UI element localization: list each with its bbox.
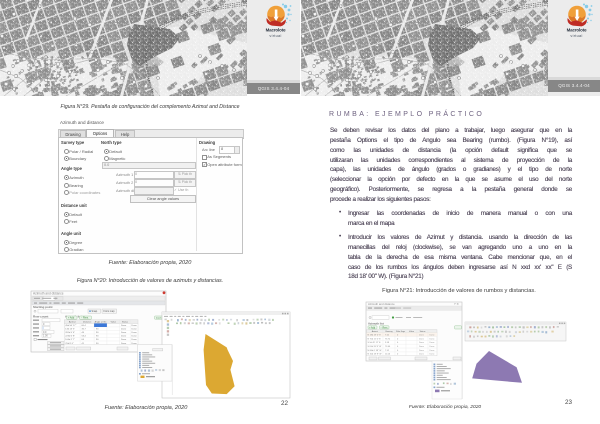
svg-text:Done: Done [132, 339, 138, 341]
svg-text:Distance: Distance [83, 321, 92, 324]
svg-text:Done: Done [132, 325, 138, 327]
svg-text:Done: Done [430, 350, 436, 352]
svg-text:Snap.: Snap. [92, 310, 99, 313]
svg-text:Done: Done [121, 336, 127, 338]
svg-text:Done: Done [121, 329, 127, 331]
svg-text:Azimuth and distance: Azimuth and distance [33, 292, 64, 296]
svg-text:Azimuth and distance: Azimuth and distance [368, 302, 395, 306]
svg-text:11.06: 11.06 [385, 354, 391, 356]
svg-text:+ Add: + Add [68, 317, 75, 320]
svg-text:N 10d 18' 8" W: N 10d 18' 8" W [368, 354, 382, 356]
svg-text:Done: Done [430, 334, 436, 336]
svg-text:N 75d 11' 6" E: N 75d 11' 6" E [368, 338, 382, 340]
svg-text:Done: Done [430, 342, 436, 344]
svg-text:Done: Done [132, 329, 138, 331]
svg-text:1.00: 1.00 [43, 335, 48, 338]
svg-text:Done: Done [430, 354, 436, 356]
svg-text:13d 13' 5": 13d 13' 5" [65, 329, 75, 331]
svg-text:Macrolote: Macrolote [567, 28, 587, 33]
svg-text:Done: Done [419, 334, 425, 336]
svg-text:Done: Done [132, 332, 138, 334]
svg-text:45d 56' 17": 45d 56' 17" [65, 325, 76, 327]
svg-text:Done: Done [121, 343, 127, 345]
svg-text:S 9d 49' 11" E: S 9d 49' 11" E [368, 342, 382, 344]
svg-text:Starting point: Starting point [33, 305, 53, 309]
svg-text:Azimuth list: Azimuth list [368, 322, 384, 326]
svg-text:S 81d 33' 8" W: S 81d 33' 8" W [368, 346, 382, 348]
svg-text:Done: Done [419, 342, 425, 344]
svg-text:Angle at the: Angle at the [95, 321, 107, 324]
svg-text:Done: Done [419, 346, 425, 348]
svg-text:Row count: Row count [33, 314, 48, 318]
svg-text:Done: Done [430, 346, 436, 348]
svg-text:virtual: virtual [570, 34, 582, 38]
svg-text:Done: Done [121, 339, 127, 341]
svg-text:N 86d 6' 38" W: N 86d 6' 38" W [368, 350, 382, 352]
svg-text:Done: Done [419, 350, 425, 352]
svg-text:Zoom: Zoom [156, 318, 162, 320]
svg-text:? ✕: ? ✕ [454, 302, 459, 306]
svg-text:73.06: 73.06 [385, 346, 391, 348]
svg-text:Done: Done [419, 338, 425, 340]
svg-text:N 18d 18' 0" E: N 18d 18' 0" E [368, 334, 382, 336]
svg-text:Done: Done [121, 332, 127, 334]
svg-text:− Rem.: − Rem. [381, 327, 389, 329]
svg-text:Macrolote: Macrolote [266, 28, 286, 33]
svg-text:Done: Done [419, 354, 425, 356]
svg-text:virtual: virtual [269, 34, 281, 38]
svg-text:Done: Done [430, 338, 436, 340]
svg-text:70d 8' 0": 70d 8' 0" [65, 343, 74, 345]
svg-text:Azimut: Azimut [69, 321, 76, 324]
svg-text:73.72: 73.72 [385, 338, 391, 340]
svg-text:164d 2' 7": 164d 2' 7" [65, 339, 75, 341]
svg-text:Done: Done [121, 325, 127, 327]
svg-text:Done: Done [132, 343, 138, 345]
svg-text:281d 5' 6": 281d 5' 6" [65, 332, 75, 334]
svg-text:From map: From map [104, 310, 116, 313]
svg-text:− Rem.: − Rem. [81, 317, 89, 320]
svg-text:Done: Done [132, 336, 138, 338]
svg-text:+ Add: + Add [369, 326, 376, 329]
svg-text:Status: Status [122, 321, 129, 324]
svg-text:223d 6' 8": 223d 6' 8" [65, 336, 75, 338]
